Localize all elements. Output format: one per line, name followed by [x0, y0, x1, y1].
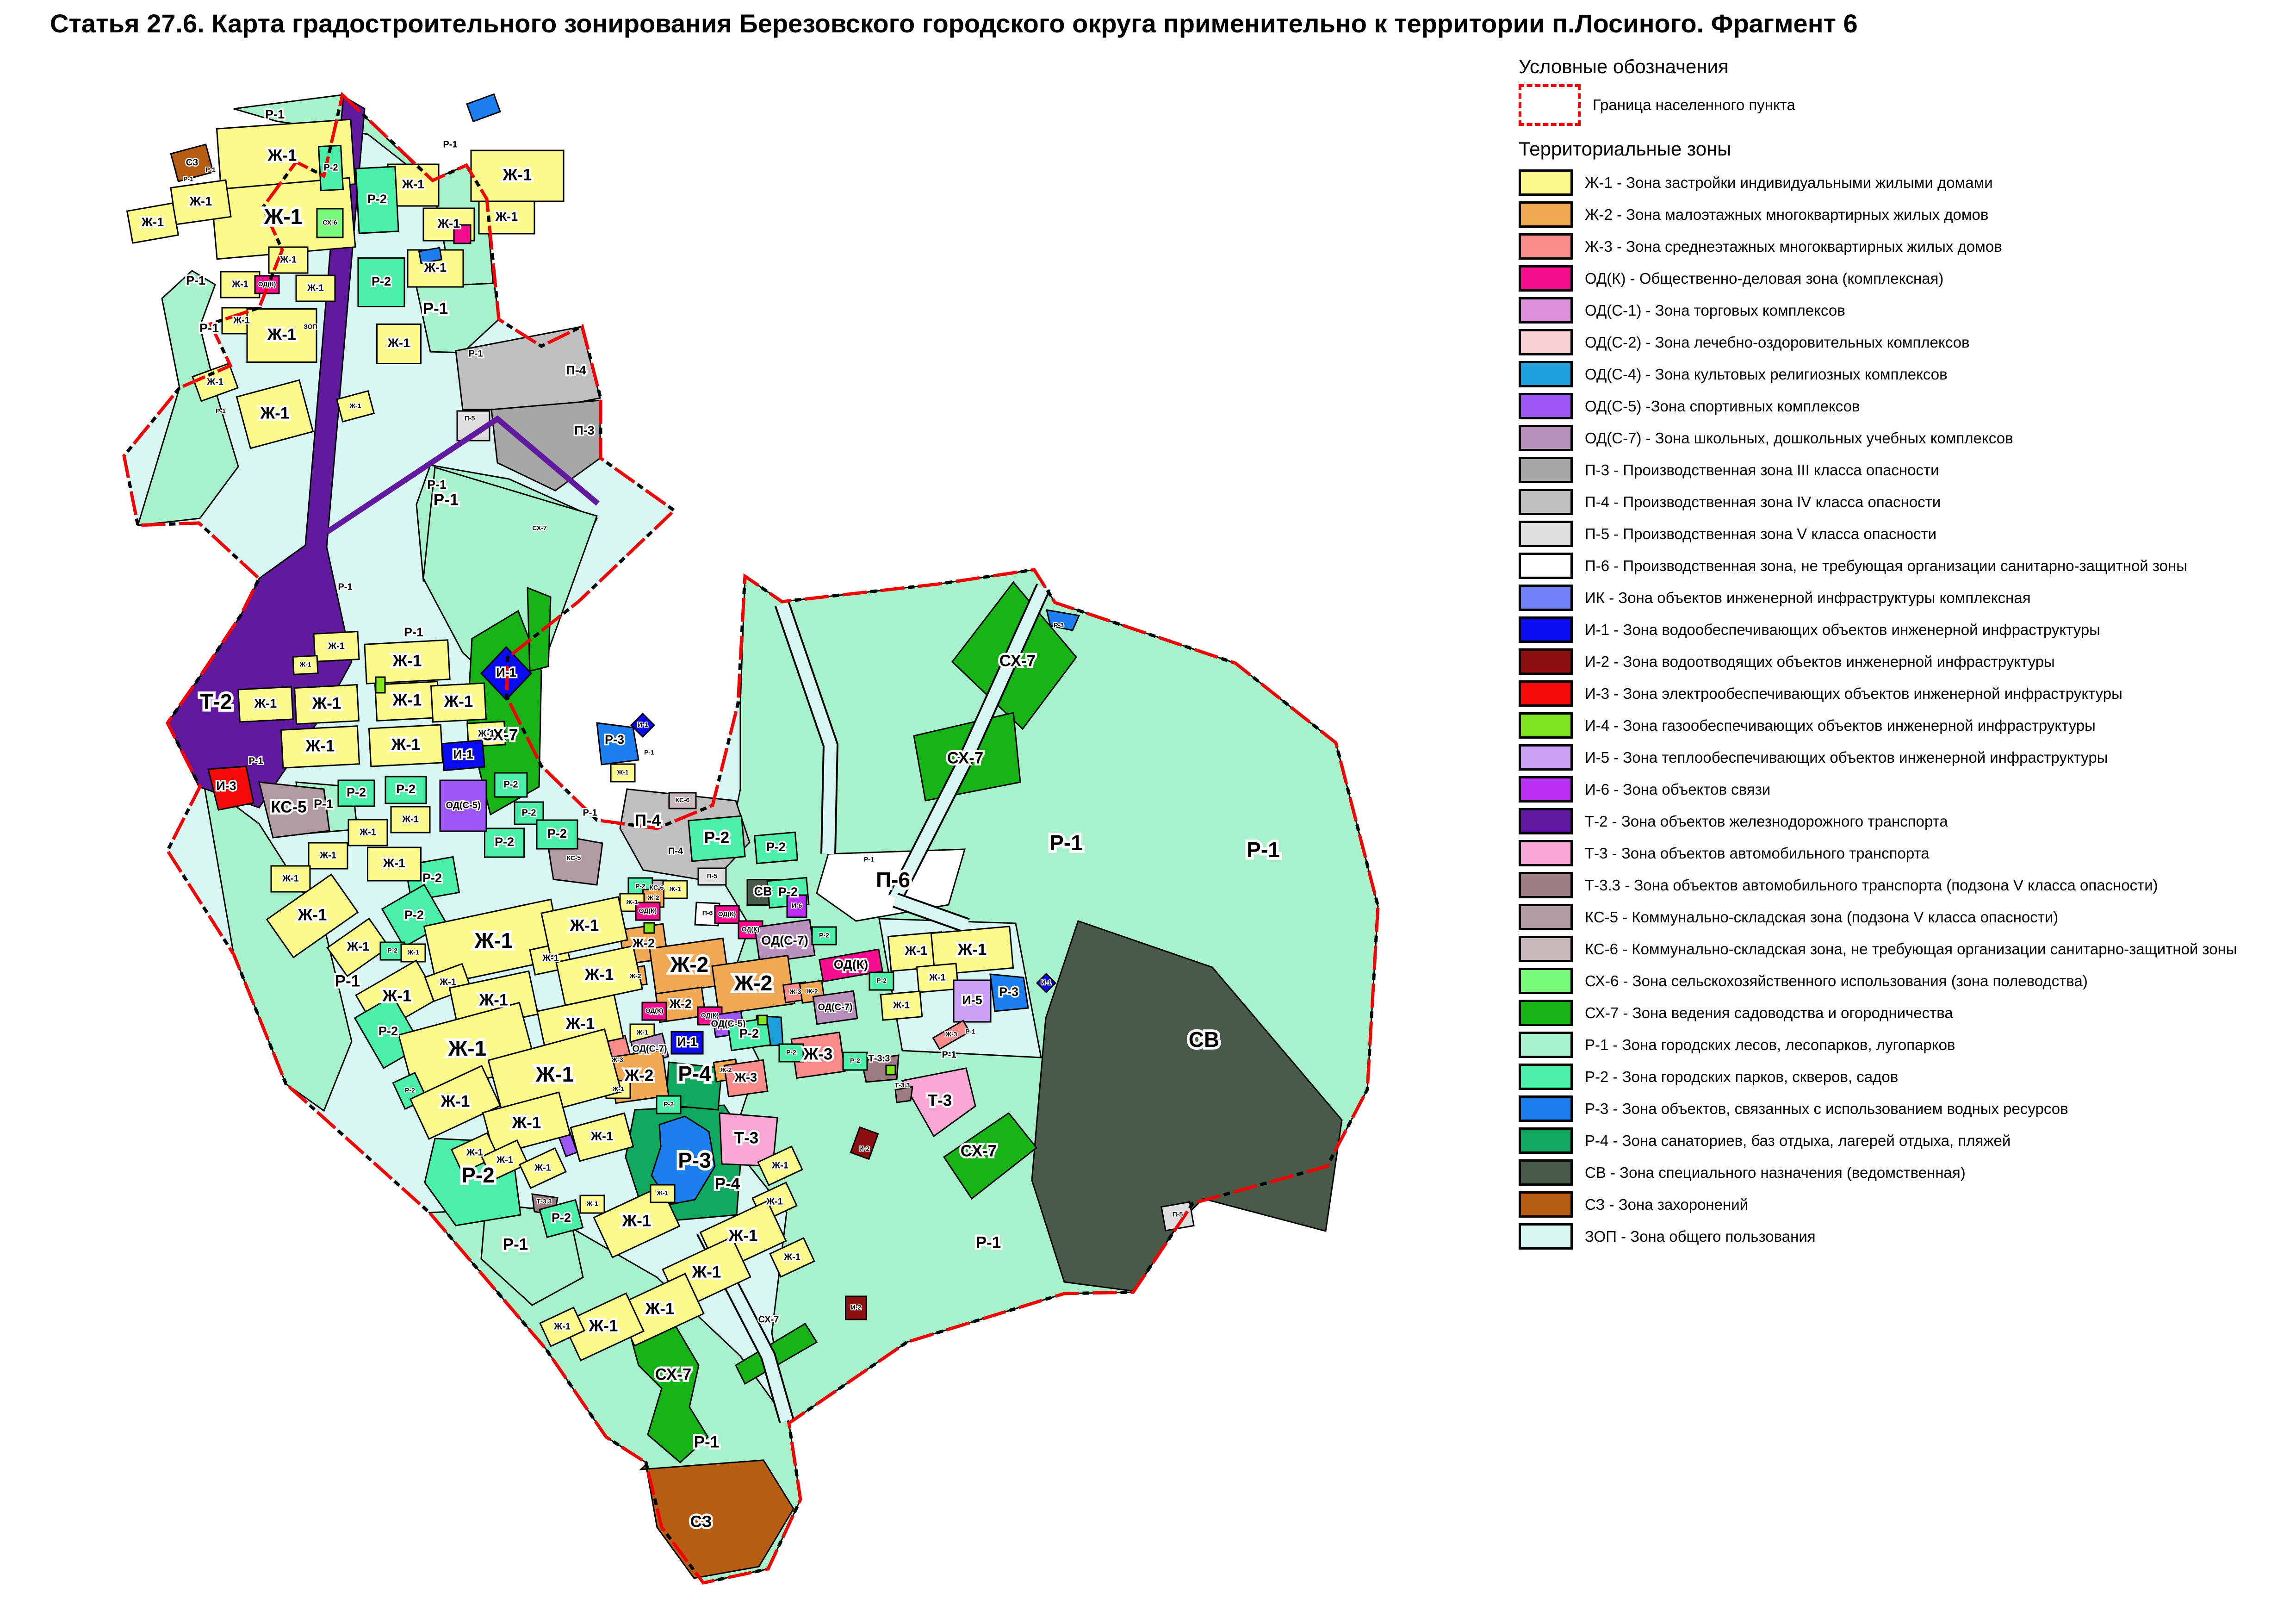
legend-swatch [1519, 904, 1573, 930]
legend-label: П-4 - Производственная зона IV класса оп… [1585, 493, 1941, 511]
map-label-Ж-1: Ж-1 [553, 1321, 571, 1332]
map-label-ОД(С-7): ОД(С-7) [761, 933, 808, 947]
map-label-Ж-1: Ж-1 [424, 261, 447, 274]
map-label-Ж-2: Ж-2 [647, 894, 659, 902]
legend-row-И-4: И-4 - Зона газообеспечивающих объектов и… [1519, 709, 2287, 741]
zone-region-СХ-7 [527, 588, 551, 671]
map-label-Ж-1: Ж-1 [444, 692, 473, 710]
parcel-И-4 [886, 1065, 895, 1075]
legend-label: ОД(С-2) - Зона лечебно-оздоровительных к… [1585, 334, 1970, 351]
legend-boundary-item: Граница населенного пункта [1519, 84, 2287, 126]
legend-label: Т-2 - Зона объектов железнодорожного тра… [1585, 813, 1948, 830]
zoning-map: Р-1Р-1Р-1Р-1Р-1Р-1Р-1Р-1Р-1Р-1Р-1Р-1П-4П… [0, 0, 1550, 1624]
legend-label: И-5 - Зона теплообеспечивающих объектов … [1585, 749, 2108, 766]
map-label-Ж-1: Ж-1 [437, 217, 460, 230]
map-label-Р-1: Р-1 [965, 1028, 975, 1035]
legend-row-И-6: И-6 - Зона объектов связи [1519, 773, 2287, 805]
map-label-Р-2: Р-2 [850, 1057, 860, 1064]
legend-row-И-3: И-3 - Зона электрообеспечивающих объекто… [1519, 678, 2287, 709]
map-label-Ж-1: Ж-1 [402, 814, 419, 824]
map-label-Ж-1: Ж-1 [448, 1036, 486, 1060]
map-label-Ж-1: Ж-1 [305, 737, 335, 755]
map-label-Р-2: Р-2 [635, 883, 645, 890]
map-label-ОД(К): ОД(К) [834, 958, 868, 971]
map-label-Р-1: Р-1 [583, 808, 597, 818]
map-label-И-1: И-1 [677, 1035, 697, 1049]
map-label-Ж-1: Ж-1 [626, 898, 638, 906]
map-label-КС-6: КС-6 [650, 884, 664, 891]
map-label-Р-1: Р-1 [644, 749, 654, 756]
map-label-Ж-1: Ж-1 [307, 283, 324, 293]
map-label-Р-1: Р-1 [404, 625, 423, 639]
map-label-СЗ: СЗ [690, 1512, 712, 1531]
map-label-СВ: СВ [754, 884, 772, 898]
map-label-Р-1: Р-1 [216, 407, 226, 415]
map-label-Ж-1: Ж-1 [893, 1000, 910, 1010]
map-label-СХ-7: СХ-7 [758, 1314, 779, 1325]
map-label-ОД(С-5): ОД(С-5) [446, 800, 480, 810]
map-label-Ж-1: Ж-1 [636, 1029, 648, 1036]
map-label-Ж-1: Ж-1 [466, 1147, 483, 1157]
legend-row-П-4: П-4 - Производственная зона IV класса оп… [1519, 486, 2287, 518]
map-label-Ж-1: Ж-1 [656, 1189, 668, 1197]
map-label-И-2: И-2 [851, 1304, 862, 1311]
map-label-Р-1: Р-1 [468, 348, 483, 359]
legend-swatch [1519, 521, 1573, 547]
legend-label: ОД(С-1) - Зона торговых комплексов [1585, 302, 1845, 319]
map-label-Ж-1: Ж-1 [189, 194, 212, 208]
map-label-Р-2: Р-2 [367, 192, 387, 206]
legend-swatch [1519, 808, 1573, 834]
map-label-И-6: И-6 [792, 902, 802, 909]
map-label-Ж-1: Ж-1 [905, 944, 927, 958]
legend-label: И-2 - Зона водоотводящих объектов инжене… [1585, 653, 2055, 671]
legend-label: ОД(К) - Общественно-деловая зона (компле… [1585, 270, 1943, 287]
legend-row-СХ-7: СХ-7 - Зона ведения садоводства и огород… [1519, 997, 2287, 1029]
legend-row-И-5: И-5 - Зона теплообеспечивающих объектов … [1519, 741, 2287, 773]
map-label-Т-3.3: Т-3.3 [869, 1053, 890, 1064]
legend-row-Р-2: Р-2 - Зона городских парков, скверов, са… [1519, 1061, 2287, 1093]
map-label-Р-2: Р-2 [404, 908, 424, 922]
map-label-П-6: П-6 [702, 909, 713, 917]
map-label-П-4: П-4 [635, 811, 661, 829]
legend-row-П-5: П-5 - Производственная зона V класса опа… [1519, 518, 2287, 550]
map-label-Ж-1: Ж-1 [319, 850, 336, 860]
legend-swatch [1519, 361, 1573, 387]
map-label-И-1: И-1 [638, 721, 648, 728]
legend-label: СВ - Зона специального назначения (ведом… [1585, 1164, 1966, 1182]
legend-row-И-2: И-2 - Зона водоотводящих объектов инжене… [1519, 646, 2287, 678]
map-label-СВ: СВ [1189, 1027, 1219, 1052]
map-label-Р-1: Р-1 [864, 856, 874, 863]
map-label-Р-3: Р-3 [1054, 622, 1064, 629]
map-label-Ж-1: Ж-1 [392, 652, 422, 670]
legend-swatch [1519, 712, 1573, 739]
legend-row-И-1: И-1 - Зона водообеспечивающих объектов и… [1519, 614, 2287, 646]
map-label-Р-1: Р-1 [199, 321, 219, 335]
map-label-Ж-1: Ж-1 [612, 1085, 624, 1093]
legend-label: П-3 - Производственная зона III класса о… [1585, 461, 1939, 479]
map-label-Р-2: Р-2 [461, 1163, 495, 1187]
map-label-Ж-1: Ж-1 [387, 336, 410, 350]
map-label-Ж-2: Ж-2 [632, 936, 655, 950]
legend-header: Условные обозначения [1519, 56, 2287, 78]
map-label-Ж-2: Ж-2 [670, 952, 708, 977]
map-label-Р-2: Р-2 [372, 274, 391, 288]
legend-label: СХ-7 - Зона ведения садоводства и огород… [1585, 1004, 1953, 1022]
map-label-СЗ: СЗ [186, 157, 199, 168]
map-label-Р-2: Р-2 [819, 932, 829, 939]
map-label-Ж-3: Ж-3 [945, 1031, 957, 1038]
map-label-ОД(С-7): ОД(С-7) [818, 1002, 852, 1012]
zone-region-Т-3.3 [895, 1087, 912, 1102]
map-label-Р-2: Р-2 [739, 1027, 759, 1040]
map-label-КС-5: КС-5 [567, 854, 581, 862]
map-label-Р-4: Р-4 [678, 1062, 711, 1086]
map-label-Ж-3: Ж-3 [611, 1056, 623, 1064]
legend: Условные обозначения Граница населенного… [1519, 56, 2287, 1252]
legend-swatch [1519, 968, 1573, 994]
legend-row-СЗ: СЗ - Зона захоронений [1519, 1188, 2287, 1220]
legend-label: П-5 - Производственная зона V класса опа… [1585, 525, 1936, 543]
legend-label: ОД(С-4) - Зона культовых религиозных ком… [1585, 366, 1948, 383]
map-label-П-5: П-5 [1173, 1211, 1183, 1218]
map-label-Ж-1: Ж-1 [590, 1129, 613, 1143]
legend-swatch [1519, 1095, 1573, 1122]
legend-swatch [1519, 393, 1573, 419]
map-label-Р-1: Р-1 [443, 139, 457, 149]
map-label-Р-1: Р-1 [503, 1235, 528, 1253]
legend-row-Т-3.3: Т-3.3 - Зона объектов автомобильного тра… [1519, 869, 2287, 901]
map-label-Ж-1: Ж-1 [279, 255, 297, 265]
map-label-Р-2: Р-2 [766, 840, 786, 854]
map-label-ОД(С-7): ОД(С-7) [632, 1044, 667, 1054]
legend-row-СХ-6: СХ-6 - Зона сельскохозяйственного исполь… [1519, 965, 2287, 997]
map-label-Ж-2: Ж-2 [720, 1066, 732, 1074]
map-label-СХ-7: СХ-7 [655, 1365, 691, 1383]
map-label-Ж-1: Ж-1 [347, 940, 369, 953]
legend-swatch [1519, 1223, 1573, 1250]
map-label-Ж-3: Ж-3 [734, 1070, 757, 1084]
legend-swatch [1519, 648, 1573, 675]
legend-label: И-3 - Зона электрообеспечивающих объекто… [1585, 685, 2122, 703]
legend-swatch [1519, 936, 1573, 962]
legend-row-ОД(С-7): ОД(С-7) - Зона школьных, дошкольных учеб… [1519, 422, 2287, 454]
map-label-Ж-1: Ж-1 [616, 769, 628, 776]
map-label-Ж-1: Ж-1 [669, 885, 681, 893]
map-label-Ж-2: Ж-2 [669, 997, 692, 1011]
map-label-Ж-3: Ж-3 [789, 988, 801, 996]
map-label-Ж-1: Ж-1 [439, 977, 456, 987]
map-label-Ж-1: Ж-1 [392, 691, 422, 709]
map-label-Ж-1: Ж-1 [565, 1014, 595, 1033]
map-label-Ж-1: Ж-1 [586, 1200, 598, 1207]
map-label-Ж-1: Ж-1 [503, 166, 532, 184]
map-label-П-5: П-5 [465, 415, 475, 422]
legend-swatch [1519, 744, 1573, 771]
map-label-Ж-1: Ж-1 [349, 402, 361, 410]
map-label-Ж-1: Ж-1 [233, 315, 250, 325]
legend-label: Ж-3 - Зона среднеэтажных многоквартирных… [1585, 238, 2002, 255]
legend-swatch [1519, 553, 1573, 579]
legend-swatch [1519, 616, 1573, 643]
map-label-Ж-1: Ж-1 [391, 735, 421, 753]
map-label-Ж-1: Ж-1 [622, 1212, 652, 1230]
legend-swatch [1519, 265, 1573, 292]
legend-row-Р-1: Р-1 - Зона городских лесов, лесопарков, … [1519, 1029, 2287, 1061]
parcel-Р-3 [467, 94, 500, 122]
map-label-Р-1: Р-1 [427, 478, 447, 492]
legend-swatch [1519, 233, 1573, 260]
map-label-Ж-1: Ж-1 [496, 1155, 513, 1165]
legend-swatch [1519, 680, 1573, 707]
map-label-И-3: И-3 [216, 779, 236, 793]
map-label-СХ-7: СХ-7 [532, 524, 547, 532]
map-label-Р-4: Р-4 [715, 1175, 740, 1193]
legend-label: И-4 - Зона газообеспечивающих объектов и… [1585, 717, 2096, 734]
map-label-Ж-1: Ж-1 [542, 953, 559, 963]
map-label-Ж-1: Ж-1 [382, 987, 412, 1005]
map-label-Ж-1: Ж-1 [512, 1114, 541, 1132]
map-label-Ж-1: Ж-1 [402, 177, 424, 191]
legend-row-ОД(С-5): ОД(С-5) -Зона спортивных комплексов [1519, 390, 2287, 422]
legend-row-КС-5: КС-5 - Коммунально-складская зона (подзо… [1519, 901, 2287, 933]
map-label-Т-2: Т-2 [200, 690, 232, 714]
map-label-Ж-1: Ж-1 [312, 694, 341, 712]
map-label-КС-6: КС-6 [676, 796, 690, 804]
legend-row-ОД(С-4): ОД(С-4) - Зона культовых религиозных ком… [1519, 358, 2287, 390]
map-label-ОД(К): ОД(К) [645, 1007, 664, 1014]
legend-label: Р-2 - Зона городских парков, скверов, са… [1585, 1068, 1898, 1086]
map-label-Ж-1: Ж-1 [495, 210, 518, 224]
map-label-Ж-1: Ж-1 [783, 1252, 800, 1262]
map-label-Р-2: Р-2 [405, 1087, 415, 1094]
map-label-Ж-2: Ж-2 [629, 972, 641, 980]
map-label-Р-2: Р-2 [379, 1024, 398, 1038]
map-label-Ж-1: Ж-1 [267, 146, 297, 164]
legend-row-ЗОП: ЗОП - Зона общего пользования [1519, 1220, 2287, 1252]
map-label-И-1: И-1 [1041, 979, 1052, 986]
map-label-ЗОП: ЗОП [304, 323, 317, 330]
map-label-Ж-1: Ж-1 [929, 972, 946, 983]
legend-swatch [1519, 776, 1573, 803]
map-label-Р-1: Р-1 [976, 1233, 1001, 1251]
legend-label: ЗОП - Зона общего пользования [1585, 1228, 1816, 1245]
legend-swatch [1519, 1191, 1573, 1218]
legend-label: Т-3.3 - Зона объектов автомобильного тра… [1585, 877, 2158, 894]
map-label-Ж-1: Ж-1 [645, 1300, 675, 1318]
legend-swatch [1519, 840, 1573, 866]
legend-label: КС-5 - Коммунально-складская зона (подзо… [1585, 908, 2058, 926]
map-label-Ж-1: Ж-1 [267, 325, 297, 343]
map-label-Ж-1: Ж-1 [282, 873, 299, 884]
legend-swatch [1519, 297, 1573, 324]
map-label-П-4: П-4 [668, 846, 683, 856]
legend-label: ОД(С-7) - Зона школьных, дошкольных учеб… [1585, 429, 2013, 447]
map-label-Р-1: Р-1 [1049, 831, 1083, 855]
map-label-Р-1: Р-1 [183, 175, 193, 183]
legend-row-Т-3: Т-3 - Зона объектов автомобильного транс… [1519, 837, 2287, 869]
map-label-СХ-6: СХ-6 [323, 219, 337, 226]
map-label-Ж-1: Ж-1 [299, 661, 311, 668]
map-label-Р-1: Р-1 [1247, 838, 1280, 862]
map-label-Р-3: Р-3 [605, 733, 624, 747]
legend-label: Р-1 - Зона городских лесов, лесопарков, … [1585, 1036, 1955, 1054]
map-label-Р-1: Р-1 [338, 582, 352, 592]
legend-label: Ж-1 - Зона застройки индивидуальными жил… [1585, 174, 1993, 192]
map-label-ОД(К): ОД(К) [639, 907, 657, 915]
map-label-Р-1: Р-1 [694, 1433, 719, 1451]
legend-label: СХ-6 - Зона сельскохозяйственного исполь… [1585, 972, 2088, 990]
map-label-Ж-1: Ж-1 [957, 940, 987, 958]
map-label-Ж-1: Ж-1 [535, 1062, 574, 1086]
map-label-Ж-1: Ж-1 [441, 1092, 470, 1110]
legend-label: ОД(С-5) -Зона спортивных комплексов [1585, 398, 1860, 415]
map-label-Ж-1: Ж-1 [766, 1196, 783, 1207]
map-label-Ж-1: Ж-1 [264, 205, 302, 229]
map-label-Р-1: Р-1 [423, 299, 448, 317]
legend-label: И-1 - Зона водообеспечивающих объектов и… [1585, 621, 2100, 639]
legend-label: СЗ - Зона захоронений [1585, 1196, 1748, 1213]
legend-row-Р-4: Р-4 - Зона санаториев, баз отдыха, лагер… [1519, 1125, 2287, 1157]
map-label-П-3: П-3 [574, 423, 594, 437]
legend-label: ИК - Зона объектов инженерной инфраструк… [1585, 589, 2031, 607]
legend-row-ОД(К): ОД(К) - Общественно-деловая зона (компле… [1519, 262, 2287, 294]
map-label-Ж-1: Ж-1 [206, 377, 223, 387]
map-label-СХ-7: СХ-7 [999, 652, 1036, 670]
map-label-Ж-1: Ж-1 [584, 965, 614, 983]
legend-row-ОД(С-2): ОД(С-2) - Зона лечебно-оздоровительных к… [1519, 326, 2287, 358]
settlement-boundary-symbol [1519, 84, 1581, 126]
map-label-Ж-1: Ж-1 [692, 1263, 721, 1281]
parcel-И-4 [644, 923, 654, 933]
legend-swatch [1519, 489, 1573, 515]
parcel-И-4 [376, 677, 385, 693]
map-label-Р-3: Р-3 [999, 985, 1018, 999]
legend-swatch [1519, 1127, 1573, 1154]
legend-swatch [1519, 169, 1573, 196]
map-label-Ж-1: Ж-1 [254, 697, 277, 710]
map-label-Р-3: Р-3 [678, 1148, 711, 1172]
map-label-Р-2: Р-2 [495, 835, 514, 849]
map-label-И-2: И-2 [859, 1145, 870, 1152]
legend-swatch [1519, 425, 1573, 451]
map-label-Ж-1: Ж-1 [260, 404, 290, 422]
legend-row-Ж-2: Ж-2 - Зона малоэтажных многоквартирных ж… [1519, 199, 2287, 230]
settlement-boundary-label: Граница населенного пункта [1593, 96, 1795, 114]
map-label-Р-1: Р-1 [186, 274, 205, 287]
legend-swatch [1519, 1000, 1573, 1026]
map-label-СХ-7: СХ-7 [947, 749, 983, 767]
map-label-КС-5: КС-5 [271, 798, 306, 816]
legend-zone-list: Ж-1 - Зона застройки индивидуальными жил… [1519, 167, 2287, 1252]
map-label-Р-2: Р-2 [664, 1101, 674, 1108]
map-label-Ж-1: Ж-1 [231, 279, 248, 289]
map-label-Р-2: Р-2 [387, 947, 397, 954]
map-label-Р-2: Р-2 [704, 828, 729, 846]
map-label-Р-1: Р-1 [265, 107, 285, 121]
map-label-Р-2: Р-2 [521, 808, 536, 818]
legend-swatch [1519, 1064, 1573, 1090]
legend-swatch [1519, 457, 1573, 483]
map-label-И-5: И-5 [962, 993, 982, 1007]
map-label-Р-2: Р-2 [503, 779, 518, 790]
map-label-Ж-1: Ж-1 [141, 215, 164, 229]
map-label-Ж-2: Ж-2 [806, 988, 818, 995]
map-label-ОД(К): ОД(К) [718, 910, 736, 918]
legend-label: Р-4 - Зона санаториев, баз отдыха, лагер… [1585, 1132, 2011, 1150]
legend-row-Ж-3: Ж-3 - Зона среднеэтажных многоквартирных… [1519, 230, 2287, 262]
map-label-Ж-1: Ж-1 [407, 949, 419, 956]
map-label-Р-2: Р-2 [323, 162, 338, 173]
map-label-Ж-1: Ж-1 [534, 1163, 551, 1173]
legend-row-П-6: П-6 - Производственная зона, не требующа… [1519, 550, 2287, 582]
legend-swatch [1519, 1032, 1573, 1058]
map-label-Р-2: Р-2 [347, 785, 366, 799]
legend-swatch [1519, 329, 1573, 355]
map-label-Ж-1: Ж-1 [359, 827, 376, 837]
map-label-П-4: П-4 [566, 363, 586, 377]
legend-row-ИК: ИК - Зона объектов инженерной инфраструк… [1519, 582, 2287, 614]
legend-row-ОД(С-1): ОД(С-1) - Зона торговых комплексов [1519, 294, 2287, 326]
map-label-Ж-1: Ж-1 [328, 641, 345, 651]
map-label-Р-1: Р-1 [248, 756, 263, 766]
map-label-СХ-7: СХ-7 [961, 1142, 997, 1160]
map-label-Т-3: Т-3 [928, 1091, 952, 1109]
map-label-Ж-1: Ж-1 [298, 906, 327, 924]
map-label-Р-2: Р-2 [552, 1211, 571, 1225]
map-label-Ж-2: Ж-2 [624, 1066, 654, 1084]
legend-swatch [1519, 1159, 1573, 1186]
map-label-Р-1: Р-1 [942, 1050, 956, 1060]
map-label-Р-2: Р-2 [422, 871, 442, 885]
map-label-Ж-1: Ж-1 [771, 1160, 788, 1170]
map-label-Ж-3: Ж-3 [803, 1045, 833, 1063]
legend-row-СВ: СВ - Зона специального назначения (ведом… [1519, 1157, 2287, 1188]
map-label-Р-2: Р-2 [396, 782, 416, 796]
map-label-Т-3.3: Т-3.3 [895, 1082, 910, 1089]
map-label-Р-1: Р-1 [205, 166, 216, 174]
legend-label: Ж-2 - Зона малоэтажных многоквартирных ж… [1585, 206, 1988, 224]
legend-label: Т-3 - Зона объектов автомобильного транс… [1585, 845, 1930, 862]
map-label-Ж-1: Ж-1 [478, 728, 495, 739]
legend-row-Р-3: Р-3 - Зона объектов, связанных с использ… [1519, 1093, 2287, 1125]
legend-row-Ж-1: Ж-1 - Зона застройки индивидуальными жил… [1519, 167, 2287, 199]
legend-label: П-6 - Производственная зона, не требующа… [1585, 557, 2187, 575]
map-label-Ж-1: Ж-1 [383, 856, 405, 870]
legend-label: Р-3 - Зона объектов, связанных с использ… [1585, 1100, 2068, 1118]
map-label-Р-2: Р-2 [547, 827, 567, 840]
map-label-Р-1: Р-1 [335, 972, 360, 990]
map-label-Р-1: Р-1 [434, 491, 459, 509]
map-label-П-5: П-5 [707, 872, 718, 880]
map-label-И-1: И-1 [496, 666, 516, 679]
map-label-Ж-2: Ж-2 [734, 971, 772, 995]
legend-swatch [1519, 585, 1573, 611]
legend-swatch [1519, 201, 1573, 228]
map-label-Ж-1: Ж-1 [589, 1317, 618, 1335]
legend-label: КС-6 - Коммунально-складская зона, не тр… [1585, 940, 2237, 958]
map-label-Р-1: Р-1 [314, 797, 333, 811]
map-label-Т-3: Т-3 [734, 1129, 759, 1147]
map-label-Р-2: Р-2 [778, 885, 798, 899]
map-label-Р-2: Р-2 [876, 977, 887, 984]
map-label-И-1: И-1 [453, 747, 473, 761]
map-label-Ж-1: Ж-1 [728, 1226, 758, 1244]
map-label-Ж-1: Ж-1 [479, 991, 509, 1009]
map-label-Ж-1: Ж-1 [474, 928, 513, 952]
map-label-ОД(К): ОД(К) [258, 280, 276, 288]
